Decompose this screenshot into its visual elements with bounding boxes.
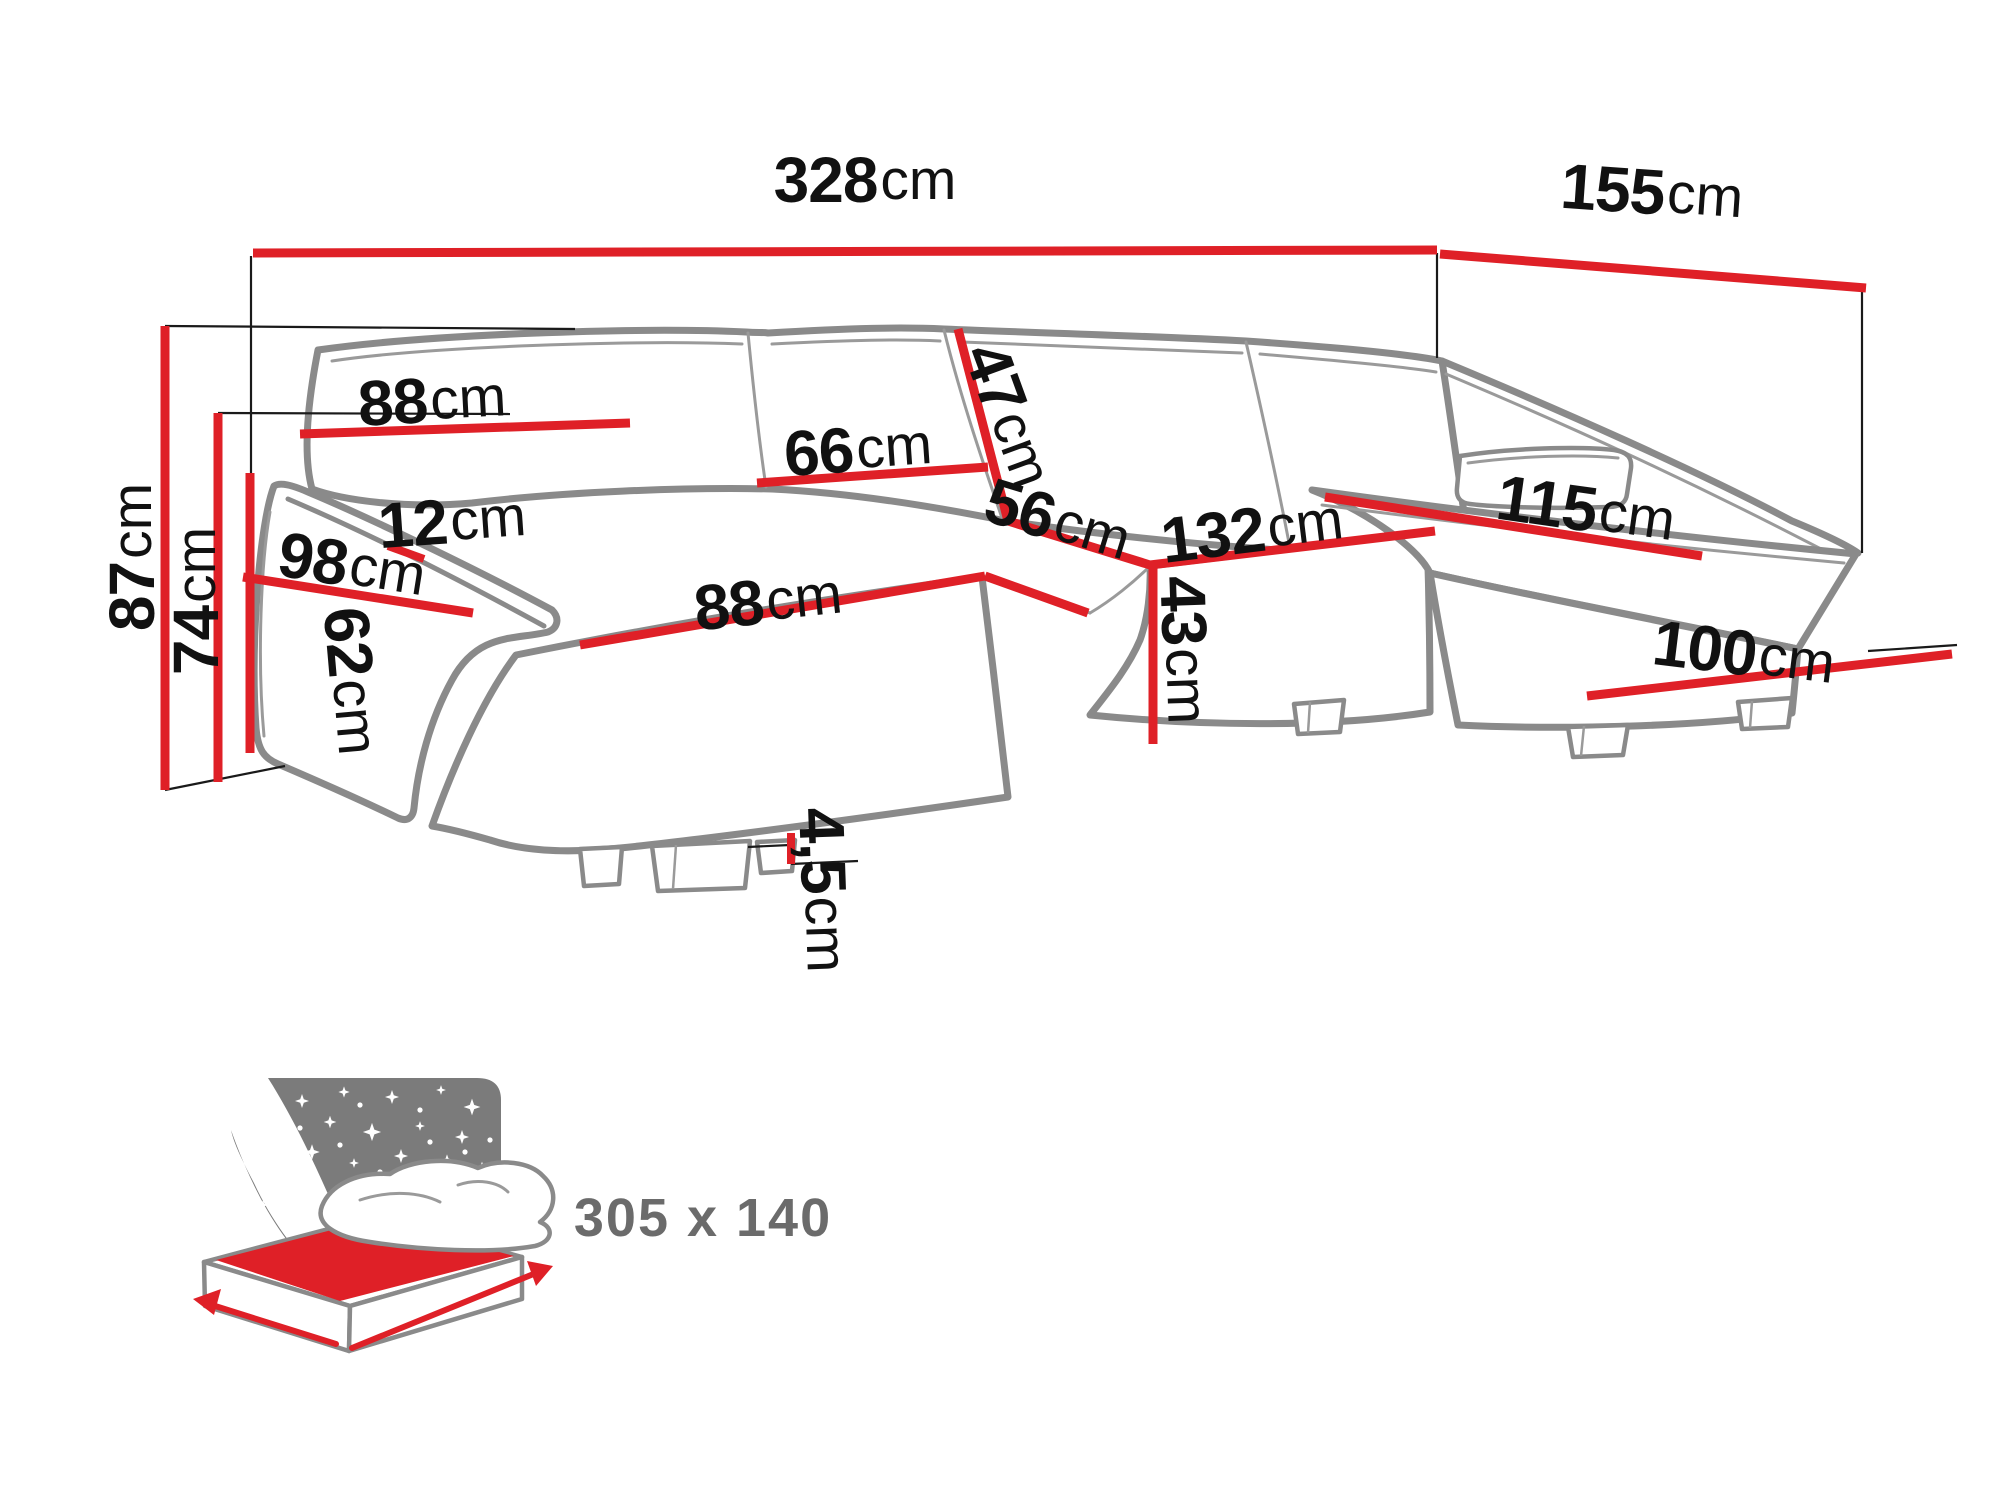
dim-line-left-seat-front-end: [985, 576, 1088, 613]
sleeping-area-icon: 305 x 140: [193, 1078, 832, 1351]
middle-seat-leg: [1294, 700, 1344, 734]
sleeping-area-size: 305 x 140: [574, 1188, 832, 1248]
dim-label-back-cushion-left: 88cm: [356, 360, 508, 440]
helper-floor-left: [165, 766, 285, 790]
dim-line-right-side-depth: [1440, 254, 1866, 288]
sofa-dimension-diagram-page: 328cm 155cm 87cm 74cm 88cm 66cm 47cm 56c…: [0, 0, 2000, 1499]
diagram-canvas: 328cm 155cm 87cm 74cm 88cm 66cm 47cm 56c…: [0, 0, 2000, 1499]
left-chaise-leg-2: [652, 841, 750, 891]
dim-label-total-height: 87cm: [96, 483, 168, 631]
left-chaise-leg-1: [580, 847, 622, 886]
dim-label-backrest-height: 74cm: [160, 527, 232, 675]
dim-label-right-side-depth: 155cm: [1558, 150, 1745, 235]
dim-label-leg-height: 4,5cm: [785, 806, 863, 973]
right-chaise-leg-2: [1738, 698, 1792, 729]
left-chaise-seam-2: [1090, 566, 1150, 613]
right-chaise-leg-1: [1568, 725, 1628, 757]
dim-label-overall-width: 328cm: [774, 144, 957, 216]
dim-label-seat-height: 43cm: [1146, 575, 1223, 726]
helper-height-87: [165, 326, 575, 329]
dim-line-overall-width: [253, 250, 1437, 253]
helper-100-end: [1868, 645, 1957, 651]
